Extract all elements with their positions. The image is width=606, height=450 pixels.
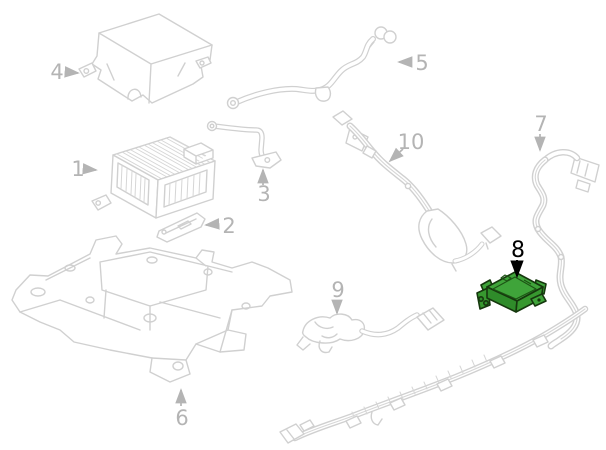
part-9-bracket-harness[interactable]: [297, 308, 444, 352]
parts-diagram-canvas: 1 2 3 4 5 6 7 8: [0, 0, 606, 450]
callout-1[interactable]: 1: [71, 157, 96, 181]
part9-bracket-blob: [303, 314, 365, 343]
callout-4-arrow: [66, 72, 78, 73]
sensor-prong-a: [479, 297, 483, 301]
part-8-sensor-highlighted[interactable]: [477, 272, 546, 312]
cover-left-foot: [79, 63, 96, 77]
part-4-cover[interactable]: [79, 14, 212, 103]
bracket3-left-eyelet: [208, 122, 217, 131]
callout-4[interactable]: 4: [50, 60, 78, 84]
callout-3[interactable]: 3: [257, 170, 270, 206]
callout-8-label[interactable]: 8: [511, 238, 525, 263]
harness10-sleeve: [419, 209, 467, 263]
callout-4-label[interactable]: 4: [50, 60, 63, 84]
part-7-harness[interactable]: [535, 152, 599, 346]
part-6-frame[interactable]: [12, 236, 292, 382]
bracket2-plate: [157, 213, 205, 242]
sensor-mount-hole: [537, 298, 540, 301]
sensor-prong-b: [484, 301, 488, 305]
callout-6[interactable]: 6: [175, 390, 188, 430]
harness10-end-connector: [481, 227, 501, 249]
callout-2[interactable]: 2: [206, 214, 236, 238]
part-1-module[interactable]: [92, 137, 215, 218]
callout-5[interactable]: 5: [399, 51, 429, 75]
bracket3-foot: [252, 152, 281, 168]
callout-9[interactable]: 9: [331, 278, 344, 313]
callout-9-label[interactable]: 9: [331, 278, 344, 302]
tube5-left-connector: [228, 98, 239, 109]
part-5-tube[interactable]: [228, 27, 397, 109]
callout-6-label[interactable]: 6: [175, 406, 188, 430]
frame-outline: [12, 236, 292, 382]
part-2-bracket[interactable]: [157, 213, 205, 242]
callout-7[interactable]: 7: [534, 112, 547, 150]
tube5-end-connector-b: [384, 31, 396, 43]
callout-1-arrow: [85, 169, 96, 170]
callout-5-label[interactable]: 5: [415, 51, 428, 75]
callout-7-label[interactable]: 7: [534, 112, 547, 136]
callout-1-label[interactable]: 1: [71, 157, 84, 181]
callout-10[interactable]: 10: [390, 130, 424, 161]
callout-10-arrow: [390, 149, 403, 161]
part-3-bracket[interactable]: [208, 122, 282, 169]
callout-3-label[interactable]: 3: [257, 182, 270, 206]
tube5-outer: [237, 39, 373, 102]
harness10-nub: [405, 183, 410, 188]
parts-diagram: 1 2 3 4 5 6 7 8: [0, 0, 606, 450]
harness7-connector: [571, 157, 599, 182]
tube5-mid-clip: [315, 87, 330, 101]
callout-2-arrow: [206, 224, 218, 225]
module-left-foot: [92, 195, 111, 210]
cover-outline: [92, 14, 212, 103]
harness7-bolt-ear2: [536, 227, 541, 232]
callout-8[interactable]: 8: [511, 238, 525, 276]
callout-2-label[interactable]: 2: [222, 214, 235, 238]
harness7-bolt-ear: [559, 255, 564, 260]
